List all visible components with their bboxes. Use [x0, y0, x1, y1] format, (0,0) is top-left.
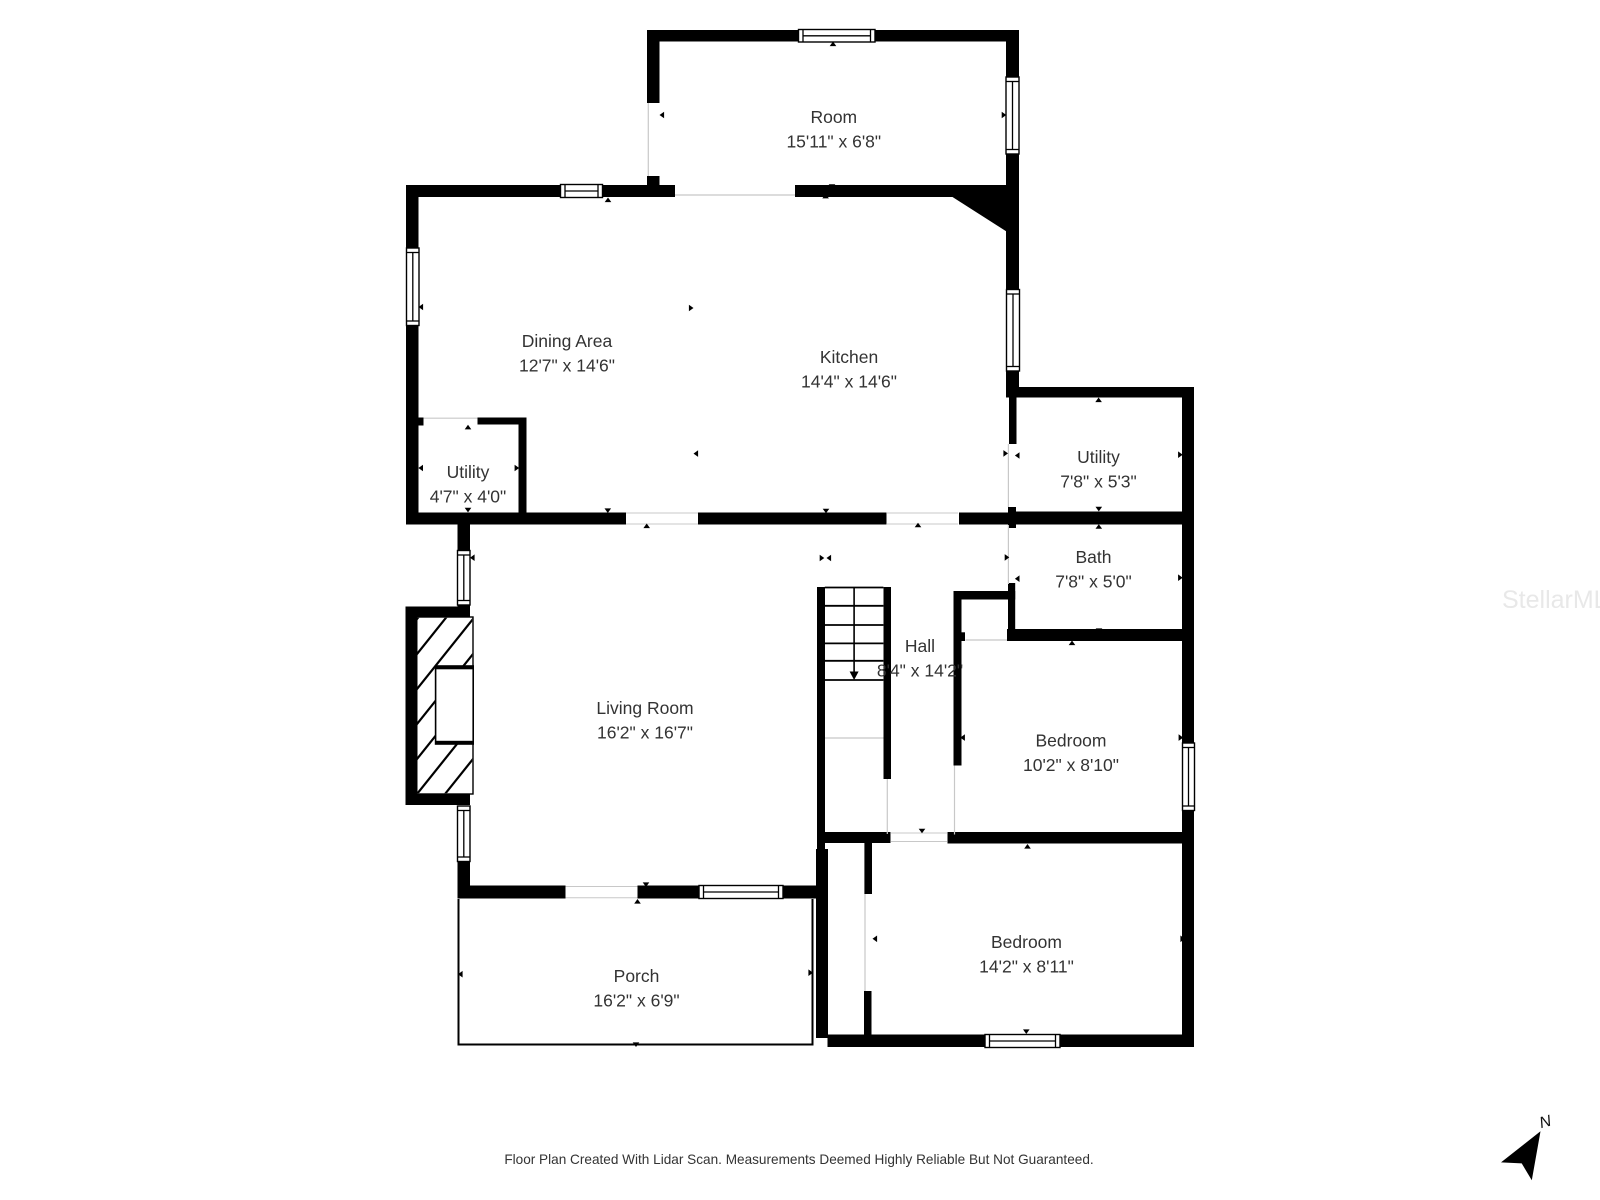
- svg-text:Living Room: Living Room: [596, 698, 693, 718]
- svg-text:Room: Room: [810, 107, 857, 127]
- svg-text:Floor Plan Created With Lidar: Floor Plan Created With Lidar Scan. Meas…: [504, 1152, 1093, 1167]
- svg-text:Utility: Utility: [1077, 447, 1120, 467]
- svg-text:14'4" x 14'6": 14'4" x 14'6": [801, 372, 897, 392]
- svg-text:Bath: Bath: [1076, 547, 1112, 567]
- svg-text:Bedroom: Bedroom: [1035, 731, 1106, 751]
- svg-text:Kitchen: Kitchen: [820, 347, 878, 367]
- svg-text:10'2" x 8'10": 10'2" x 8'10": [1023, 755, 1119, 775]
- svg-text:Porch: Porch: [614, 966, 660, 986]
- svg-text:Utility: Utility: [447, 462, 490, 482]
- svg-text:Dining Area: Dining Area: [522, 331, 613, 351]
- svg-text:16'2" x 16'7": 16'2" x 16'7": [597, 723, 693, 743]
- svg-text:15'11" x 6'8": 15'11" x 6'8": [786, 132, 881, 152]
- svg-text:14'2" x 8'11": 14'2" x 8'11": [979, 957, 1074, 977]
- svg-text:16'2" x 6'9": 16'2" x 6'9": [593, 991, 679, 1011]
- svg-text:12'7" x 14'6": 12'7" x 14'6": [519, 356, 615, 376]
- svg-text:StellarMLS: StellarMLS: [1502, 586, 1600, 614]
- svg-text:8'4" x 14'2": 8'4" x 14'2": [877, 661, 963, 681]
- svg-text:4'7" x 4'0": 4'7" x 4'0": [430, 487, 507, 507]
- svg-text:Bedroom: Bedroom: [991, 932, 1062, 952]
- svg-text:Hall: Hall: [905, 636, 935, 656]
- svg-text:7'8" x 5'3": 7'8" x 5'3": [1060, 472, 1137, 492]
- svg-text:7'8" x 5'0": 7'8" x 5'0": [1055, 572, 1132, 592]
